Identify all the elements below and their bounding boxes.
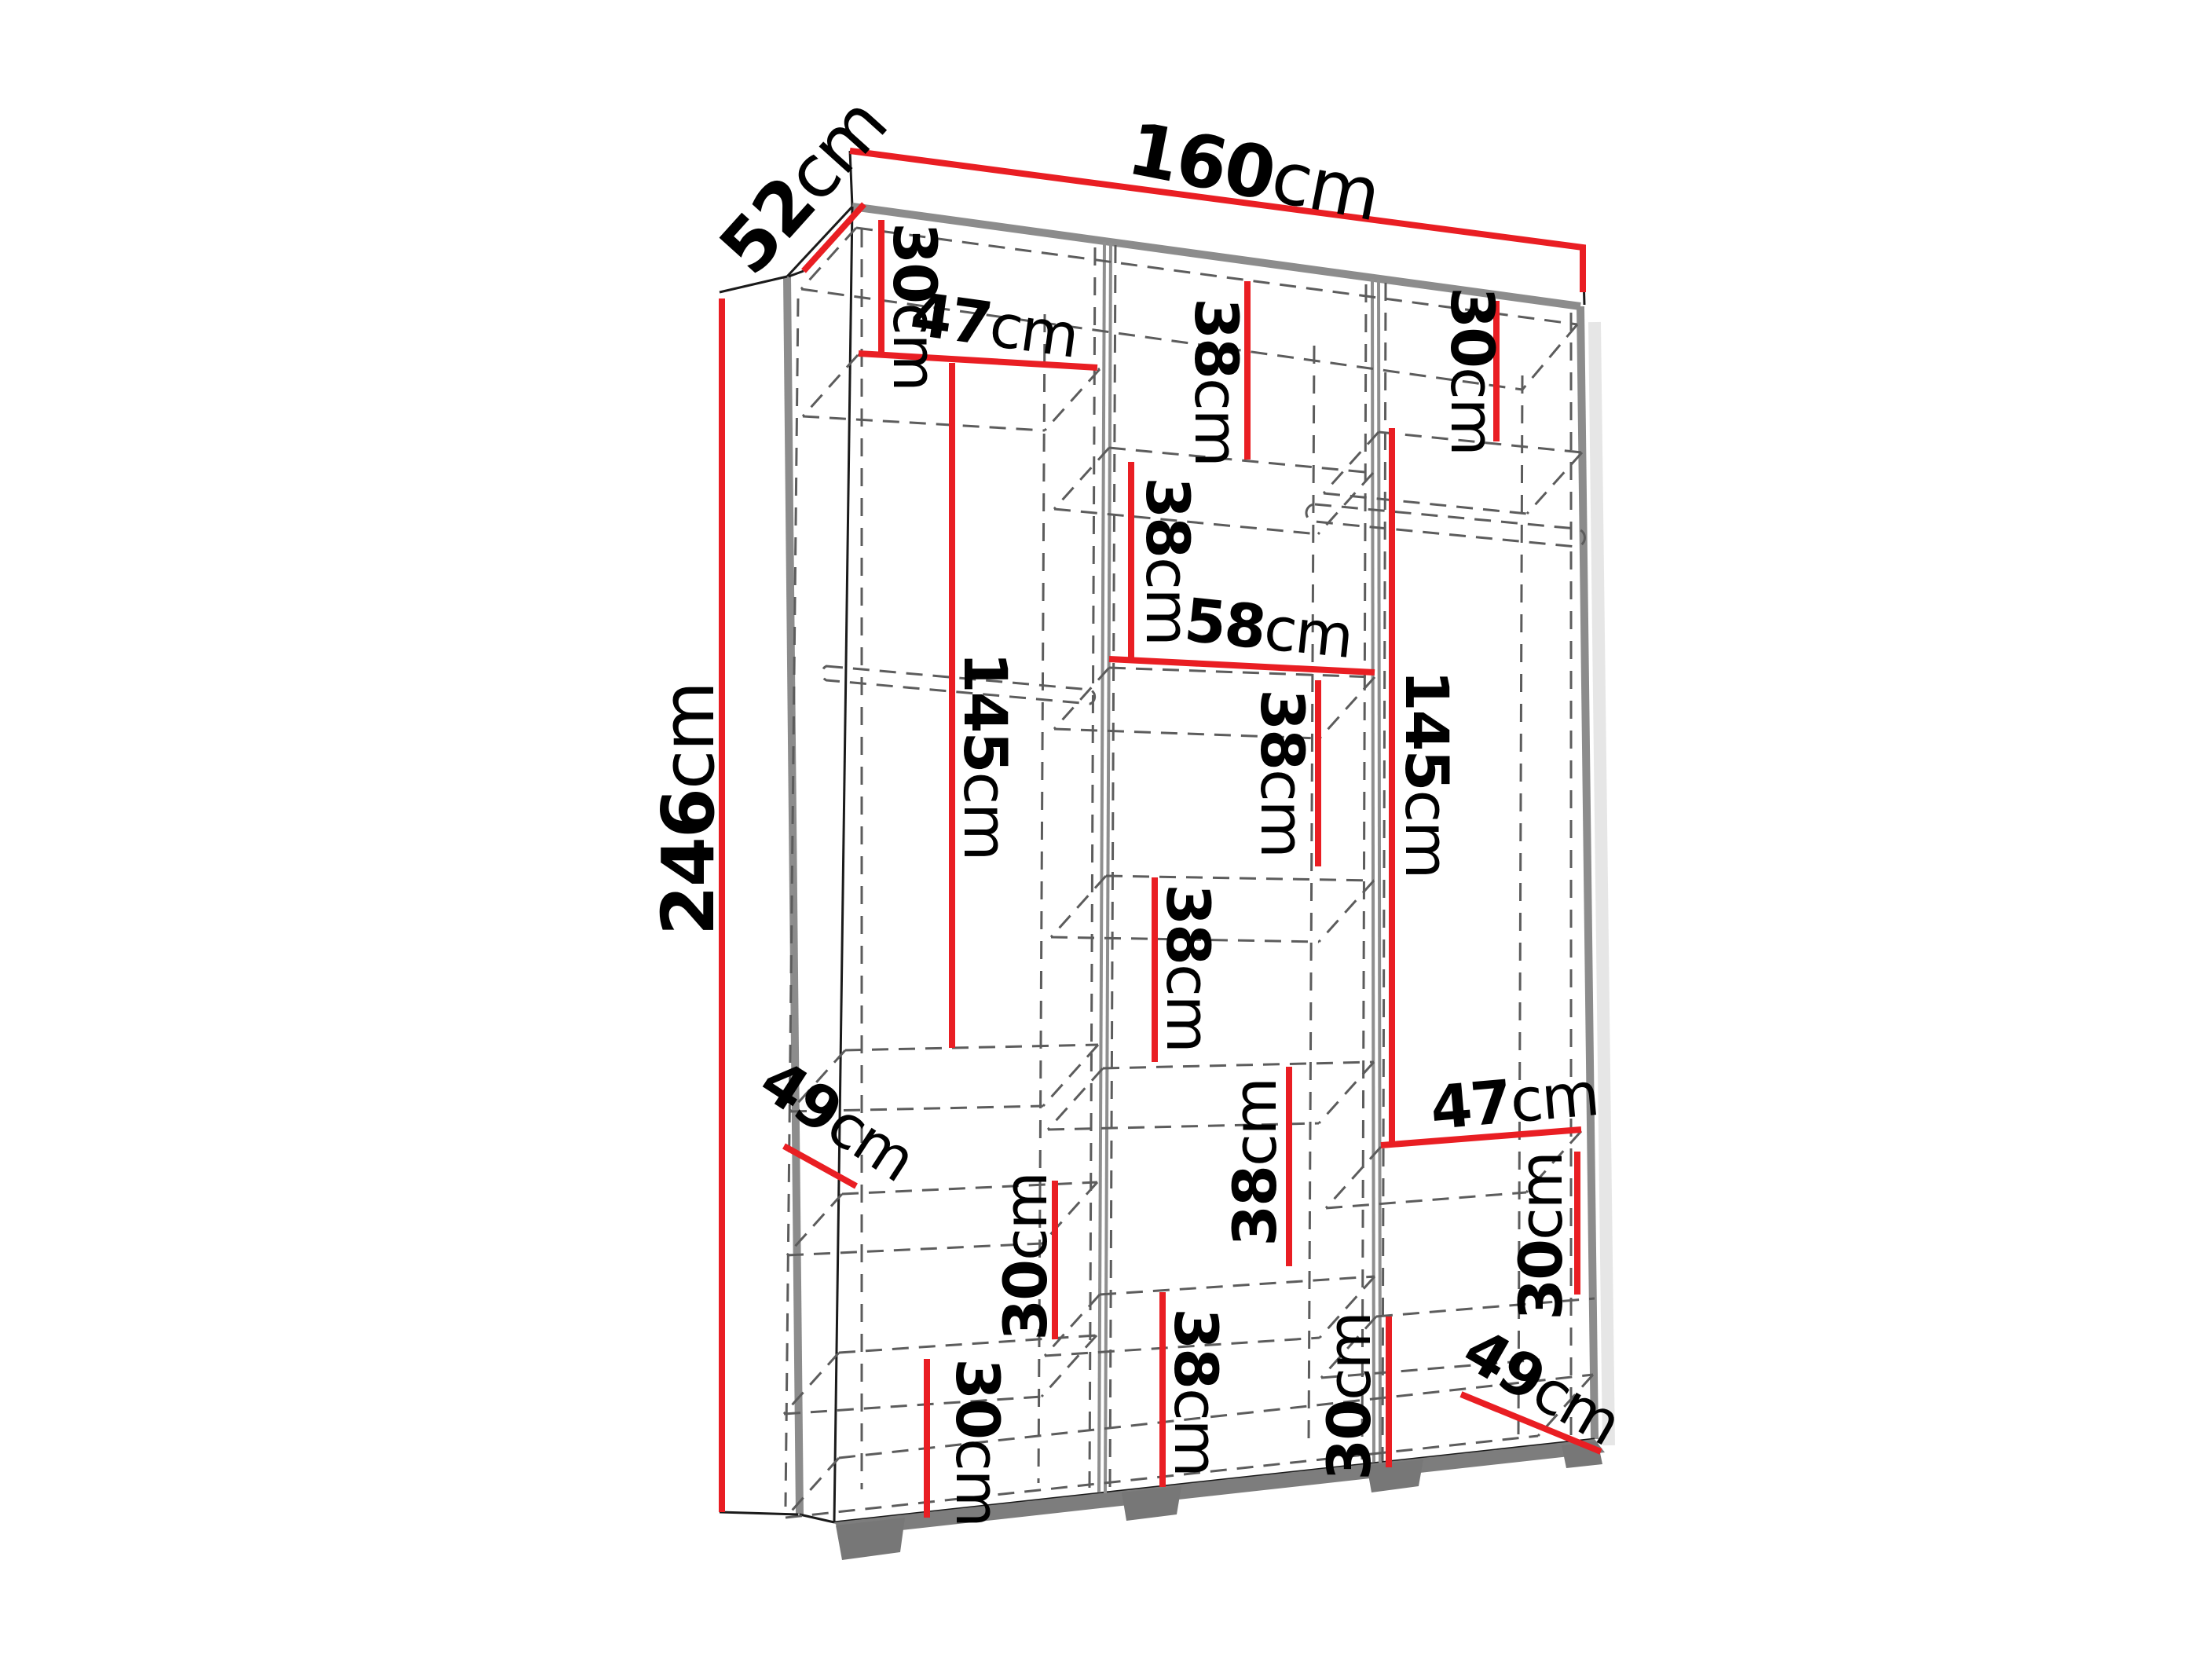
height-extension-bottom: [720, 1512, 798, 1514]
label-right-47: 47cm: [1427, 1059, 1601, 1143]
divider-2-back: [1379, 280, 1380, 1463]
label-right-lower-30: 30cm: [1314, 1313, 1384, 1481]
label-right-upper-30: 30cm: [1506, 1152, 1576, 1320]
label-left-mid-30: 30cm: [991, 1173, 1060, 1341]
label-left-bottom-30: 30cm: [943, 1358, 1013, 1526]
label-mid-38-1: 38cm: [1181, 298, 1251, 466]
label-left-145: 145cm: [950, 652, 1020, 859]
divider-2-front: [1372, 279, 1374, 1462]
label-right-145: 145cm: [1392, 670, 1462, 877]
wardrobe-dimension-diagram: 160cm 52cm 246cm 30cm 47cm 145cm 49cm 30…: [0, 0, 2212, 1659]
label-overall-height: 246cm: [646, 683, 731, 936]
label-mid-38-6: 38cm: [1161, 1308, 1231, 1476]
label-mid-38-5: 38cm: [1220, 1079, 1290, 1247]
label-right-top-30: 30cm: [1437, 287, 1507, 455]
label-mid-38-4: 38cm: [1153, 884, 1223, 1052]
right-shadow: [1595, 322, 1609, 1445]
label-mid-38-3: 38cm: [1247, 689, 1317, 857]
